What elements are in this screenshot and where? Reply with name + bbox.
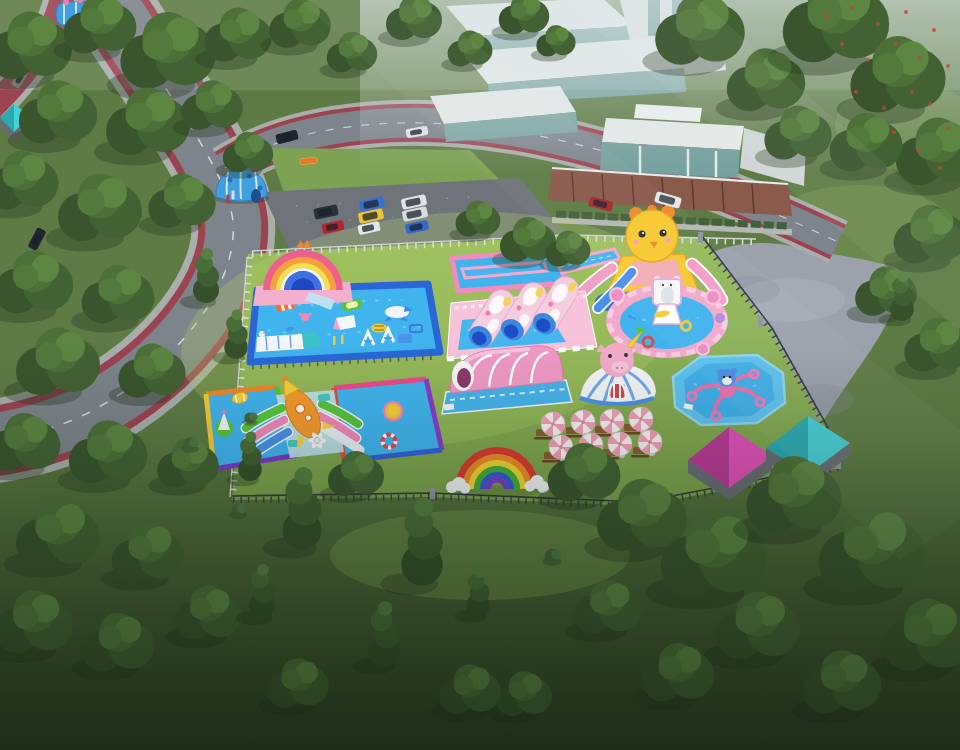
vignette <box>0 0 960 750</box>
waterpark-aerial-render <box>0 0 960 750</box>
